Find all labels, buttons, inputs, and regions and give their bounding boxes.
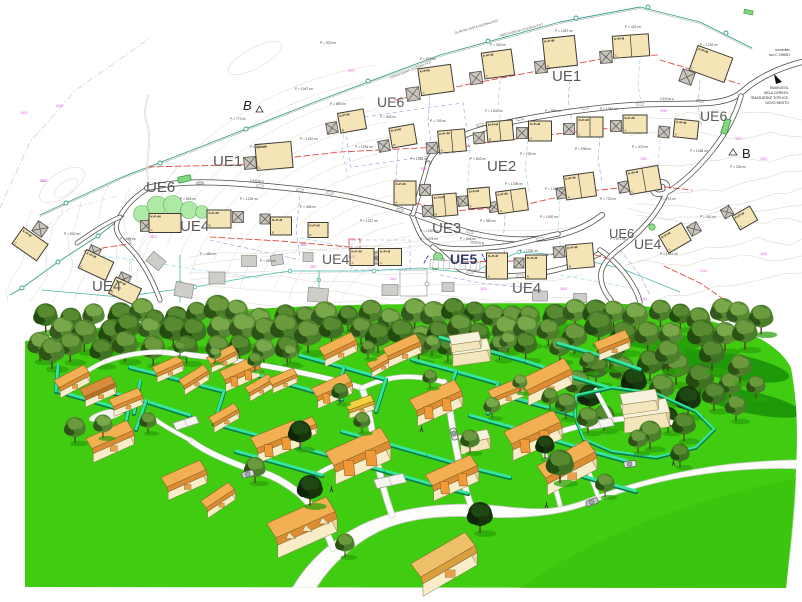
svg-text:UE4: UE4 (180, 218, 209, 235)
svg-text:3025: 3025 (56, 104, 63, 108)
svg-text:3697: 3697 (310, 265, 317, 269)
svg-text:P = 923 m²: P = 923 m² (320, 41, 337, 45)
svg-text:B: B (435, 212, 437, 216)
svg-text:P = 1036 m²: P = 1036 m² (520, 249, 539, 253)
svg-text:A: A (530, 137, 532, 141)
svg-text:3744: 3744 (640, 297, 647, 301)
svg-text:K+P+M: K+P+M (527, 256, 538, 260)
svg-text:usmeritev: usmeritev (775, 48, 790, 52)
svg-text:3003: 3003 (40, 179, 47, 183)
svg-text:B: B (569, 264, 571, 268)
svg-text:CESTA C: CESTA C (250, 179, 265, 184)
svg-text:K+P+M: K+P+M (352, 250, 363, 254)
svg-text:na LC 295081: na LC 295081 (769, 53, 790, 57)
svg-text:A: A (396, 201, 398, 205)
svg-text:BELA CERKEV,: BELA CERKEV, (764, 91, 789, 95)
svg-text:K+P+M: K+P+M (625, 116, 636, 120)
svg-text:UE4: UE4 (634, 236, 661, 252)
svg-text:UE6: UE6 (377, 94, 404, 110)
svg-text:UE6: UE6 (700, 108, 727, 124)
svg-text:P = 893 m²: P = 893 m² (180, 197, 197, 201)
svg-text:P = 1341 m²: P = 1341 m² (660, 252, 679, 256)
svg-text:P = 1319 m²: P = 1319 m² (545, 187, 564, 191)
svg-text:P = 503 m²: P = 503 m² (380, 115, 397, 119)
svg-text:UE4: UE4 (92, 278, 121, 295)
svg-text:P = 1047 m²: P = 1047 m² (295, 87, 314, 91)
svg-text:3503: 3503 (150, 235, 157, 239)
svg-text:K+P+M: K+P+M (272, 218, 283, 222)
svg-text:P = 484 m²: P = 484 m² (200, 252, 217, 256)
svg-text:P = 335 m²: P = 335 m² (730, 165, 747, 169)
svg-text:3339: 3339 (660, 109, 667, 113)
svg-text:A: A (352, 261, 354, 265)
svg-text:3323: 3323 (760, 157, 767, 161)
svg-text:P = 938 m²: P = 938 m² (575, 147, 592, 151)
svg-text:P = 452 m²: P = 452 m² (700, 215, 717, 219)
svg-text:P = 773 m²: P = 773 m² (230, 117, 247, 121)
svg-text:P = 1287 m²: P = 1287 m² (555, 29, 574, 33)
svg-text:UE6: UE6 (609, 226, 634, 241)
svg-text:P = 1294 m²: P = 1294 m² (700, 43, 719, 47)
svg-text:B: B (310, 233, 312, 237)
svg-text:K+P+M: K+P+M (380, 250, 391, 254)
svg-text:3403: 3403 (20, 111, 27, 115)
svg-text:UE4: UE4 (512, 280, 541, 297)
svg-text:B: B (272, 231, 274, 235)
svg-text:P = 456 m²: P = 456 m² (300, 205, 317, 209)
svg-text:P = 1357 m²: P = 1357 m² (600, 107, 619, 111)
svg-text:ŠMARJETA,: ŠMARJETA, (770, 85, 789, 90)
svg-text:P = 590 m²: P = 590 m² (260, 259, 277, 263)
svg-text:P = 895 m²: P = 895 m² (545, 109, 562, 113)
svg-text:3352: 3352 (420, 167, 427, 171)
svg-text:P = 1295 m²: P = 1295 m² (505, 182, 524, 186)
svg-text:K+P+M: K+P+M (151, 215, 162, 219)
svg-text:P = 325 m²: P = 325 m² (490, 43, 507, 47)
svg-text:P = 1373 m²: P = 1373 m² (420, 237, 439, 241)
svg-text:UE5: UE5 (450, 251, 477, 267)
svg-text:UE3: UE3 (432, 220, 461, 237)
svg-text:3001: 3001 (735, 137, 742, 141)
svg-text:A: A (625, 129, 627, 133)
svg-text:P = 850 m²: P = 850 m² (480, 219, 497, 223)
svg-text:P = 1254 m²: P = 1254 m² (355, 145, 374, 149)
svg-text:P = 424 m²: P = 424 m² (625, 25, 642, 29)
svg-text:B: B (243, 98, 252, 113)
svg-text:P = 1092 m²: P = 1092 m² (540, 215, 559, 219)
svg-text:P = 708 m²: P = 708 m² (520, 152, 537, 156)
svg-text:NOVO MESTO: NOVO MESTO (765, 101, 789, 105)
svg-text:CESTA A: CESTA A (660, 97, 675, 102)
svg-text:K+P+M: K+P+M (530, 122, 541, 126)
svg-text:3309: 3309 (560, 287, 567, 291)
svg-text:P = 1239 m²: P = 1239 m² (240, 197, 259, 201)
svg-text:3385: 3385 (640, 157, 647, 161)
svg-text:3972: 3972 (348, 69, 355, 73)
svg-text:ŠMARJEŠKE TOPLICE,: ŠMARJEŠKE TOPLICE, (751, 95, 789, 100)
svg-text:A: A (441, 148, 443, 152)
svg-text:P = 542 m²: P = 542 m² (470, 157, 487, 161)
svg-text:3144: 3144 (700, 269, 707, 273)
svg-text:B: B (489, 137, 491, 141)
svg-text:P = 729 m²: P = 729 m² (600, 197, 617, 201)
svg-text:P = 745 m²: P = 745 m² (430, 119, 447, 123)
svg-text:UE6: UE6 (146, 179, 175, 196)
svg-text:P = 1337 m²: P = 1337 m² (360, 219, 379, 223)
svg-text:K+P+M: K+P+M (614, 36, 625, 41)
svg-text:K+P+M: K+P+M (579, 118, 590, 122)
svg-text:3860: 3860 (300, 243, 307, 247)
svg-text:P = 475 m²: P = 475 m² (632, 145, 649, 149)
svg-text:3426: 3426 (760, 252, 767, 256)
svg-text:P = 850 m²: P = 850 m² (330, 102, 347, 106)
svg-text:A: A (675, 132, 677, 136)
svg-text:A: A (488, 275, 490, 279)
svg-text:3415: 3415 (480, 287, 487, 291)
svg-text:P = 731 m²: P = 731 m² (660, 197, 677, 201)
svg-text:K+P+M: K+P+M (488, 254, 499, 258)
svg-text:P = 884 m²: P = 884 m² (250, 145, 267, 149)
svg-text:3461: 3461 (390, 277, 397, 281)
svg-text:B: B (527, 275, 529, 279)
svg-text:UE1: UE1 (213, 153, 242, 170)
svg-text:UE1: UE1 (552, 68, 581, 85)
svg-text:P = 573 m²: P = 573 m² (420, 57, 437, 61)
svg-text:P = 1302 m²: P = 1302 m² (485, 109, 504, 113)
svg-text:K+P+M: K+P+M (396, 182, 407, 186)
svg-text:A: A (547, 64, 549, 68)
svg-text:P = 1251 m²: P = 1251 m² (300, 137, 319, 141)
svg-text:K+P+M: K+P+M (310, 224, 321, 228)
svg-text:UE4: UE4 (322, 251, 349, 267)
svg-text:K+P+M: K+P+M (209, 211, 220, 215)
svg-text:P = 1268 m²: P = 1268 m² (690, 149, 709, 153)
svg-text:UE2: UE2 (487, 158, 516, 175)
svg-text:P = 530 m²: P = 530 m² (64, 232, 81, 236)
svg-text:P = 1255 m²: P = 1255 m² (410, 157, 429, 161)
svg-text:B: B (742, 146, 751, 161)
